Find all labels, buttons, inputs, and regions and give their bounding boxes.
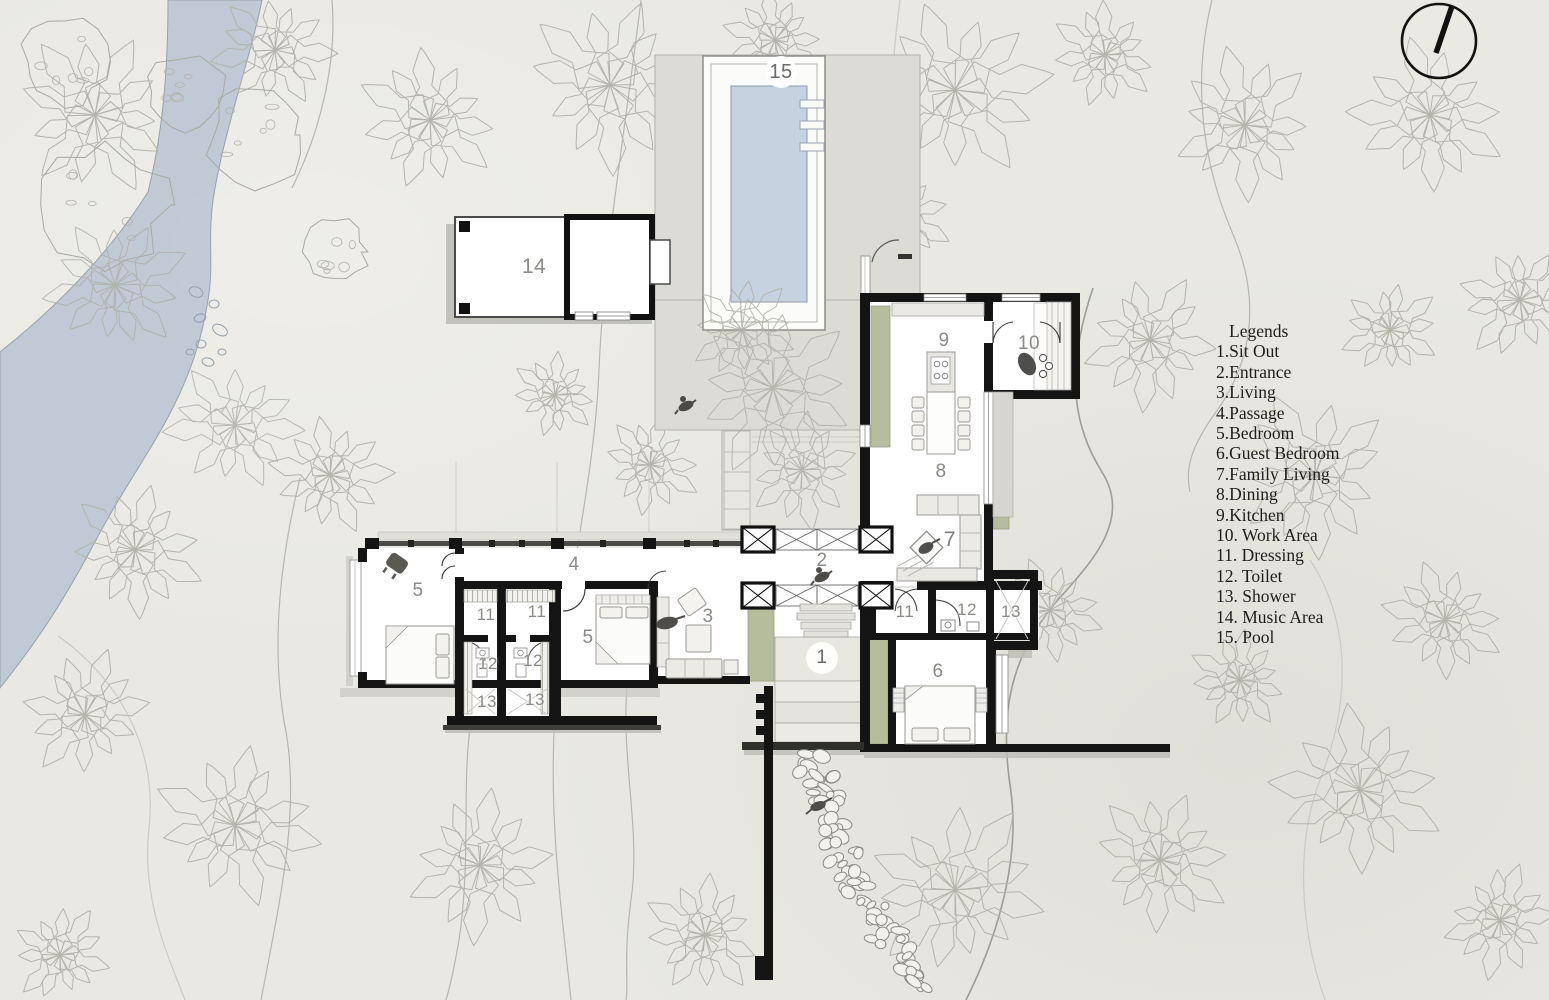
room-label-dining: 8 — [935, 461, 946, 483]
legend-item-work-area: 10. Work Area — [1216, 525, 1339, 545]
eave-lines — [456, 462, 649, 532]
room-label-toilet-right: 12 — [957, 600, 977, 620]
legend-item-kitchen: 9.Kitchen — [1216, 505, 1339, 525]
room-label-entrance: 2 — [816, 550, 827, 572]
verandah — [993, 392, 1013, 517]
legend-title: Legends — [1216, 321, 1339, 341]
room-label-dressing-a: 11 — [477, 605, 496, 625]
music-windows — [575, 312, 630, 320]
site-plan-canvas: 15 14 9 10 8 7 2 4 5 5 3 11 11 12 12 13 … — [0, 0, 1549, 1000]
room-label-work-area: 10 — [1018, 333, 1040, 355]
room-label-music-area: 14 — [522, 255, 546, 279]
room-label-bedroom-left: 5 — [412, 580, 423, 602]
house-plan — [340, 55, 1170, 980]
room-label-shower-a: 13 — [477, 692, 497, 712]
bay-window — [350, 560, 361, 676]
column — [459, 303, 470, 314]
room-label-shower-b: 13 — [525, 690, 545, 710]
legend-item-living: 3.Living — [1216, 382, 1339, 402]
room-label-bedroom-mid: 5 — [582, 627, 593, 649]
pebble-path — [790, 747, 934, 995]
north-arrow-icon — [1402, 4, 1476, 78]
room-label-dressing-right: 11 — [896, 602, 915, 622]
legend-item-sit-out: 1.Sit Out — [1216, 341, 1339, 361]
music-area-building — [455, 217, 670, 320]
room-label-toilet-a: 12 — [478, 654, 498, 674]
legend-item-toilet: 12. Toilet — [1216, 566, 1339, 586]
legend-item-pool: 15. Pool — [1216, 627, 1339, 647]
room-label-family-living: 7 — [944, 528, 956, 552]
room-label-pool: 15 — [765, 56, 797, 88]
legend-item-family-living: 7.Family Living — [1216, 464, 1339, 484]
legend: Legends 1.Sit Out 2.Entrance 3.Living 4.… — [1216, 321, 1339, 648]
room-label-passage: 4 — [568, 554, 579, 576]
legend-item-guest-bedroom: 6.Guest Bedroom — [1216, 443, 1339, 463]
room-label-toilet-b: 12 — [523, 651, 543, 671]
legend-item-music-area: 14. Music Area — [1216, 607, 1339, 627]
legend-item-dining: 8.Dining — [1216, 484, 1339, 504]
legend-item-passage: 4.Passage — [1216, 403, 1339, 423]
column — [459, 221, 470, 232]
room-label-guest-bedroom: 6 — [932, 661, 943, 683]
legend-item-entrance: 2.Entrance — [1216, 362, 1339, 382]
room-label-kitchen: 9 — [938, 330, 949, 352]
room-label-sit-out: 1 — [806, 642, 838, 674]
pool — [703, 56, 825, 330]
room-label-living: 3 — [702, 606, 713, 628]
legend-item-dressing: 11. Dressing — [1216, 545, 1339, 565]
room-label-shower-right: 13 — [1001, 602, 1021, 622]
legend-item-bedroom: 5.Bedroom — [1216, 423, 1339, 443]
room-label-dressing-b: 11 — [528, 602, 547, 622]
legend-item-shower: 13. Shower — [1216, 586, 1339, 606]
pool-steps — [800, 100, 824, 151]
